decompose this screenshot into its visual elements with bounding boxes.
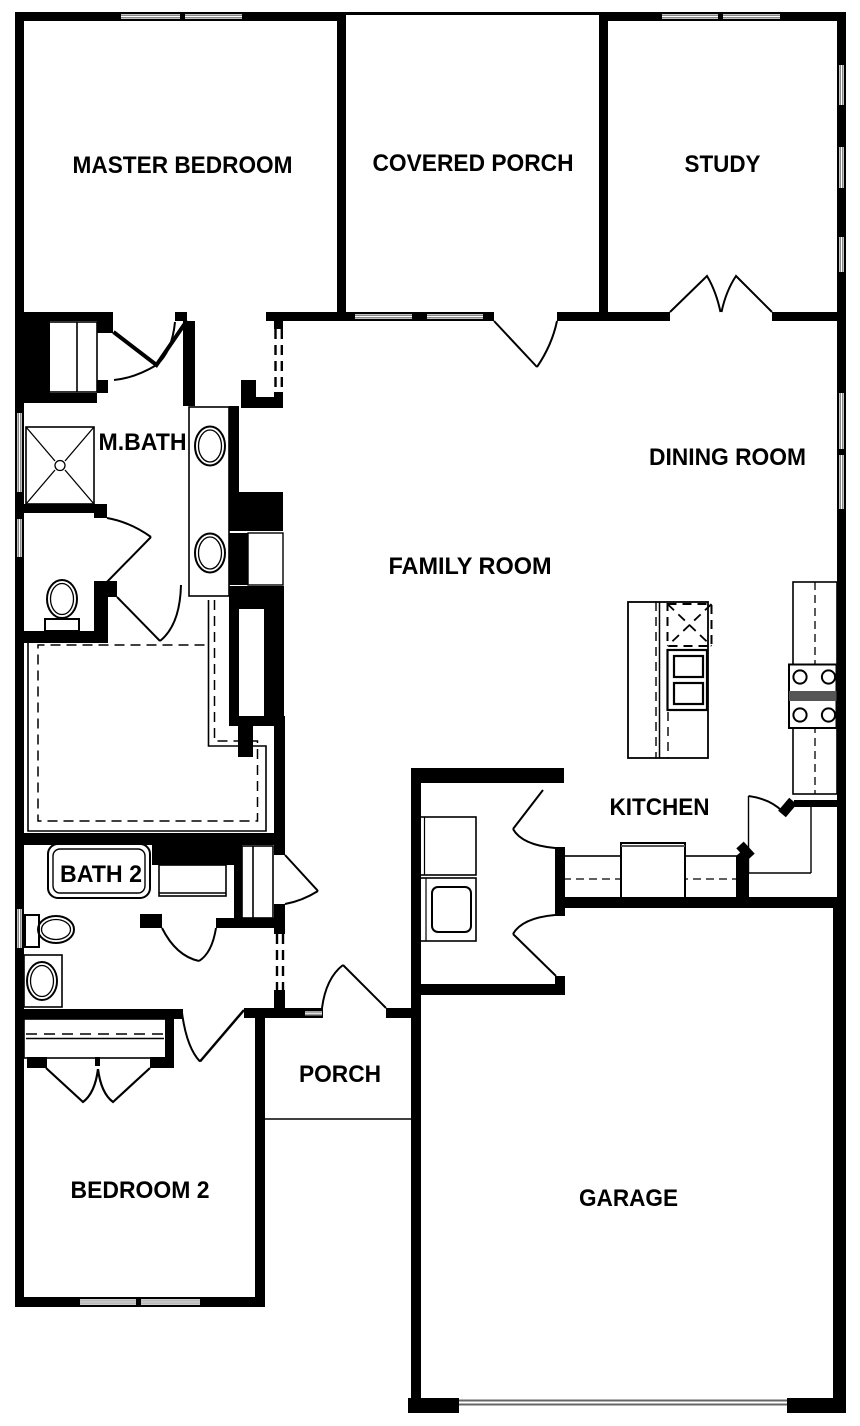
svg-text:BATH 2: BATH 2 (60, 861, 142, 888)
svg-text:BEDROOM 2: BEDROOM 2 (71, 1177, 210, 1204)
svg-text:COVERED PORCH: COVERED PORCH (373, 150, 574, 177)
svg-text:PORCH: PORCH (299, 1061, 381, 1088)
svg-text:KITCHEN: KITCHEN (610, 794, 710, 821)
svg-text:FAMILY ROOM: FAMILY ROOM (389, 553, 552, 580)
svg-text:M.BATH: M.BATH (99, 429, 187, 456)
svg-text:GARAGE: GARAGE (579, 1185, 678, 1212)
svg-text:DINING ROOM: DINING ROOM (649, 444, 806, 471)
svg-text:STUDY: STUDY (685, 151, 761, 178)
svg-text:MASTER BEDROOM: MASTER BEDROOM (73, 152, 293, 179)
